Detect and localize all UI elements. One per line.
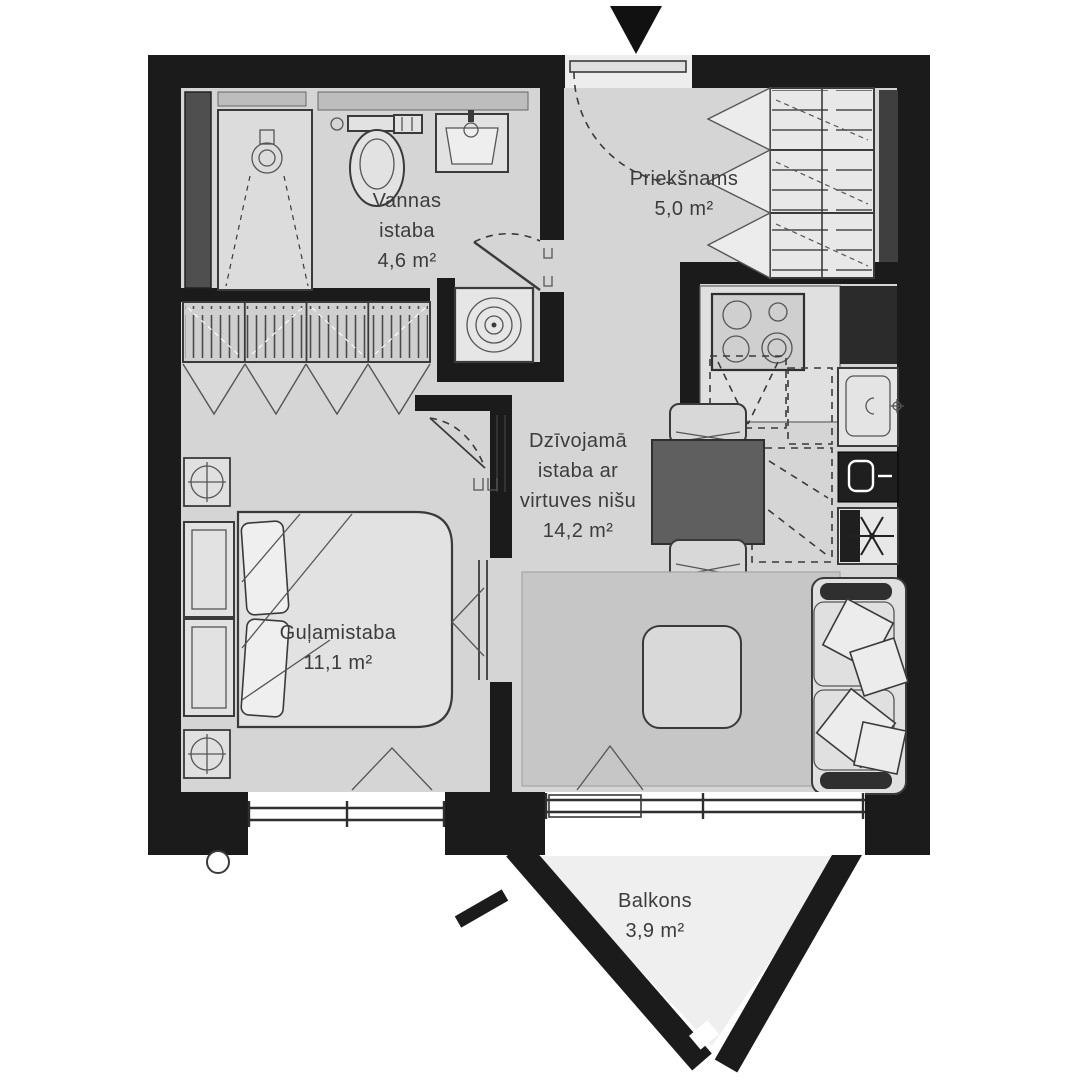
coffee-table-icon: [643, 626, 741, 728]
wall-niche: [318, 92, 528, 110]
ceiling-fixture-icon: [184, 458, 230, 506]
sofa-icon: [812, 578, 908, 794]
fridge-snowflake-icon: [838, 508, 898, 564]
ceiling-fixture-icon: [184, 730, 230, 778]
stove-icon: [712, 294, 804, 370]
tall-cabinet: [840, 286, 897, 364]
kitchen-sink-icon: [838, 368, 904, 446]
dresser: [184, 522, 234, 716]
duct-shaft: [185, 92, 211, 288]
oven-icon: [838, 452, 898, 502]
shower-icon: [218, 110, 312, 290]
bed-icon: [238, 512, 452, 727]
living-room: [522, 572, 908, 855]
washing-machine-icon: [455, 288, 533, 362]
drain-pipe-icon: [207, 851, 229, 873]
floor-plan: [0, 0, 1088, 1088]
balcony-wall-stub: [458, 895, 505, 922]
duct-shaft: [879, 90, 898, 262]
wall-niche: [218, 92, 306, 106]
towel-radiator-icon: [394, 115, 422, 133]
bathroom-sink-icon: [436, 110, 508, 172]
entrance-arrow-icon: [610, 6, 662, 54]
wardrobe-shelves-icon: [708, 88, 874, 278]
floorplan-page: Vannas istaba 4,6 m² Priekšnams 5,0 m² D…: [0, 0, 1088, 1088]
